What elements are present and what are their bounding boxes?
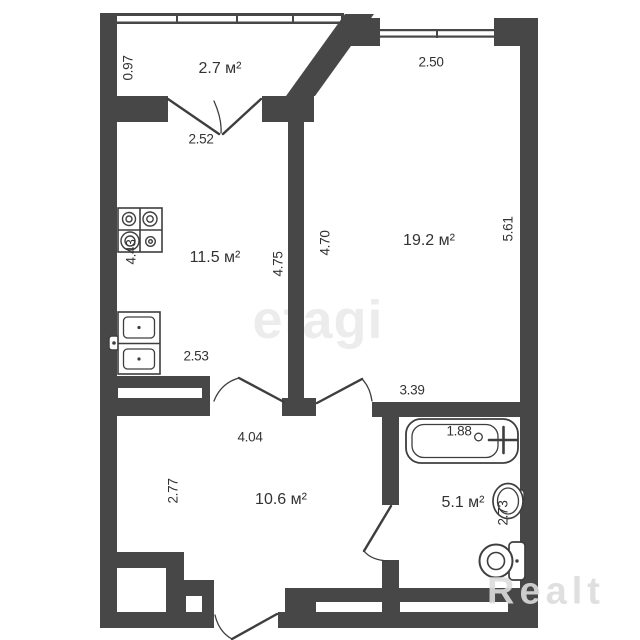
living-door-arc <box>362 379 372 401</box>
wall-kitchen-living <box>288 96 304 416</box>
bathroom-door-leaf <box>364 506 391 551</box>
entry-niche <box>186 596 202 612</box>
kitchen-area-label: 11.5 м² <box>190 249 241 267</box>
hallway-area-label: 10.6 м² <box>255 491 307 509</box>
wall-living-bottom <box>372 402 520 417</box>
dim-kitchen-width-bottom: 2.53 <box>183 349 208 364</box>
entrance-door-leaf <box>232 614 277 639</box>
entrance-door-arc <box>215 615 232 639</box>
dim-kitchen-height-left: 4.43 <box>124 239 139 264</box>
wall-bottom-left-band <box>100 612 214 628</box>
dim-bathtub-length: 1.88 <box>446 424 471 439</box>
living-room-area-label: 19.2 м² <box>403 232 455 250</box>
dim-living-window-width: 2.50 <box>418 55 443 70</box>
floor-plan-drawing <box>0 0 640 640</box>
dim-hall-height-left: 2.77 <box>166 478 181 503</box>
balcony-window-mullion-1 <box>176 13 178 24</box>
wall-bottom-inner-band <box>285 588 520 602</box>
kitchen-door-arc <box>214 378 239 401</box>
walls <box>100 13 538 628</box>
wall-bottom-outer-band <box>278 612 538 628</box>
wall-cavities <box>118 388 202 612</box>
dim-living-height-left: 4.70 <box>318 230 333 255</box>
dim-balcony-door-width: 2.52 <box>188 132 213 147</box>
wall-outer-left <box>100 13 117 628</box>
kitchen-door-leaf <box>239 378 284 402</box>
wall-center-pillar <box>282 398 316 416</box>
balcony-window-inner-line <box>117 22 344 25</box>
balcony-window-outer-line <box>117 13 344 16</box>
doors <box>168 99 391 639</box>
floor-plan: etagi <box>0 0 640 640</box>
bathroom-area-label: 5.1 м² <box>441 494 484 512</box>
dim-hall-width-top: 4.04 <box>237 430 262 445</box>
balcony-window-mullion-2 <box>236 13 238 24</box>
dim-bathroom-height: 2.73 <box>496 500 511 525</box>
kitchen-wall-cavity <box>118 388 202 398</box>
dim-kitchen-height-right: 4.75 <box>271 251 286 276</box>
balcony-window-mullion-3 <box>292 13 294 24</box>
wall-outer-right <box>520 18 538 628</box>
balcony-door-left-leaf <box>168 99 219 134</box>
balcony-door-right-leaf <box>223 99 261 134</box>
wall-living-top-right <box>494 18 538 46</box>
dim-balcony-depth: 0.97 <box>121 55 136 80</box>
balcony-area-label: 2.7 м² <box>198 60 241 78</box>
dim-living-height-right: 5.61 <box>501 216 516 241</box>
wall-bathroom-left-lower <box>382 560 399 590</box>
bathroom-door-arc <box>364 551 388 561</box>
realt-watermark: Realt <box>487 571 605 614</box>
dim-living-width-bottom: 3.39 <box>399 383 424 398</box>
bathtub-drain <box>475 433 483 441</box>
wall-bathroom-left-upper <box>382 417 399 505</box>
toilet-tank-button <box>515 559 518 562</box>
wall-living-top-left <box>344 18 380 46</box>
wall-balcony-bottom-left <box>117 96 168 122</box>
balcony-door-arc <box>214 101 221 133</box>
living-room-window <box>380 29 494 38</box>
living-window-mullion <box>436 29 438 38</box>
living-door-leaf <box>317 379 362 403</box>
